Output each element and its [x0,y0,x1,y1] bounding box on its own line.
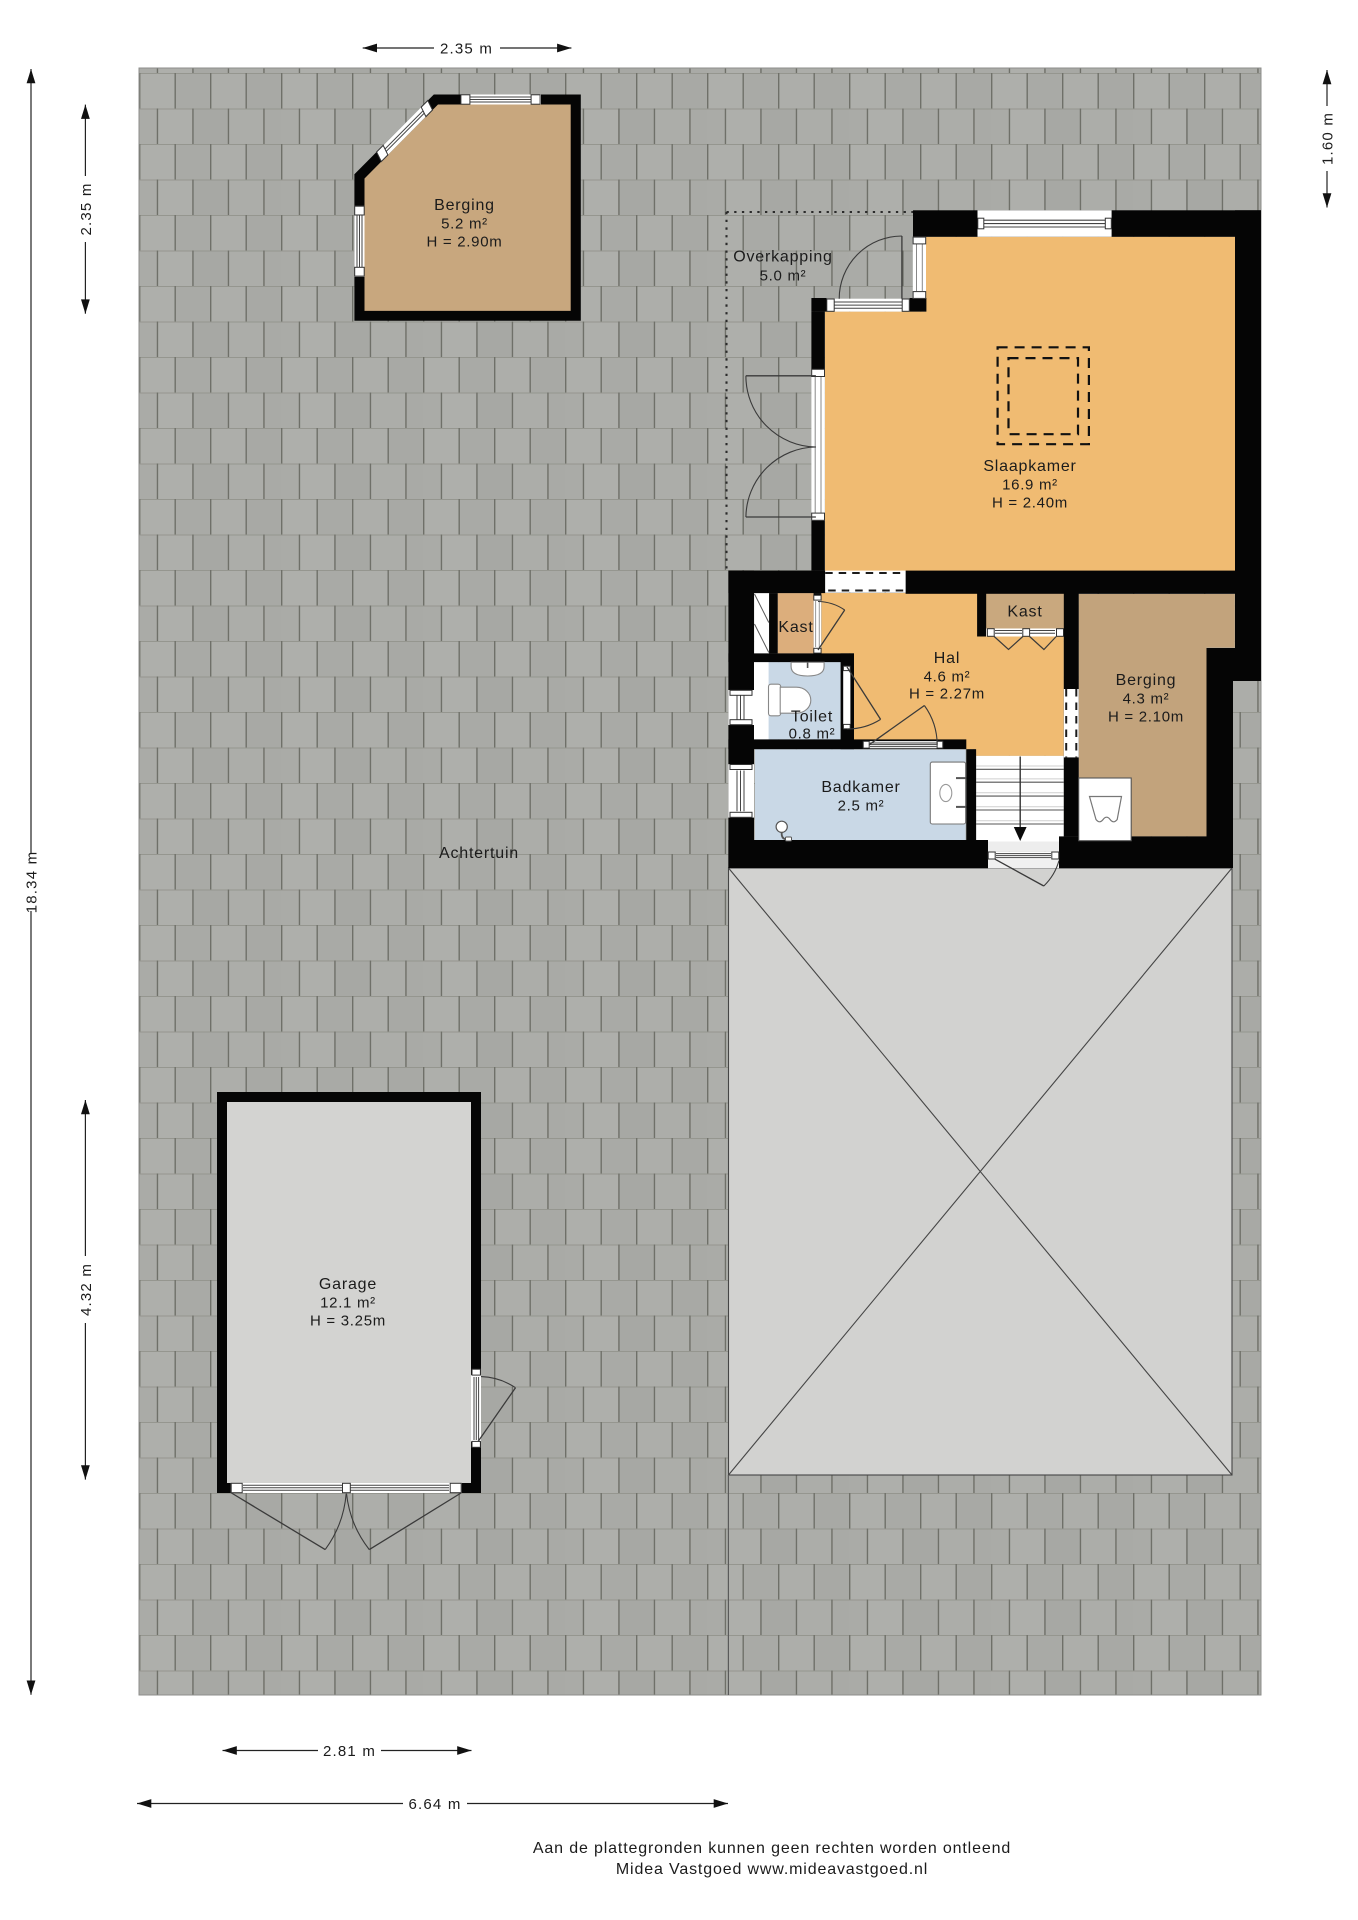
svg-text:2.81 m: 2.81 m [323,1743,376,1760]
svg-text:16.9 m²: 16.9 m² [1002,477,1058,494]
svg-text:H = 3.25m: H = 3.25m [310,1313,386,1330]
svg-text:H = 2.10m: H = 2.10m [1108,709,1184,726]
svg-text:0.8 m²: 0.8 m² [789,726,836,743]
svg-text:Kast: Kast [1007,604,1042,621]
svg-text:5.2 m²: 5.2 m² [441,216,488,233]
svg-text:H = 2.40m: H = 2.40m [992,495,1068,512]
svg-text:2.35 m: 2.35 m [78,182,95,235]
svg-text:5.0 m²: 5.0 m² [760,268,807,285]
svg-text:12.1 m²: 12.1 m² [320,1295,376,1312]
svg-text:Midea Vastgoed www.mideavastgo: Midea Vastgoed www.mideavastgoed.nl [616,1861,928,1878]
svg-text:4.3 m²: 4.3 m² [1123,691,1170,708]
svg-text:Berging: Berging [1116,672,1177,689]
svg-text:Garage: Garage [319,1276,377,1293]
svg-text:6.64 m: 6.64 m [408,1796,461,1813]
svg-text:Berging: Berging [434,197,495,214]
svg-text:H = 2.27m: H = 2.27m [909,686,985,703]
svg-text:Aan de plattegronden kunnen ge: Aan de plattegronden kunnen geen rechten… [533,1840,1011,1857]
svg-text:1.60 m: 1.60 m [1320,112,1337,165]
svg-text:Slaapkamer: Slaapkamer [983,458,1076,475]
svg-text:Achtertuin: Achtertuin [439,845,519,862]
svg-text:4.6 m²: 4.6 m² [924,669,971,686]
svg-text:2.35 m: 2.35 m [440,41,493,58]
svg-text:Overkapping: Overkapping [733,249,833,266]
svg-text:Badkamer: Badkamer [821,779,900,796]
svg-text:Toilet: Toilet [791,709,833,726]
svg-text:18.34 m: 18.34 m [24,851,41,914]
svg-text:Hal: Hal [934,650,960,667]
svg-text:Kast: Kast [778,619,813,636]
svg-text:2.5 m²: 2.5 m² [838,798,885,815]
svg-text:4.32 m: 4.32 m [78,1263,95,1316]
svg-text:H = 2.90m: H = 2.90m [427,234,503,251]
